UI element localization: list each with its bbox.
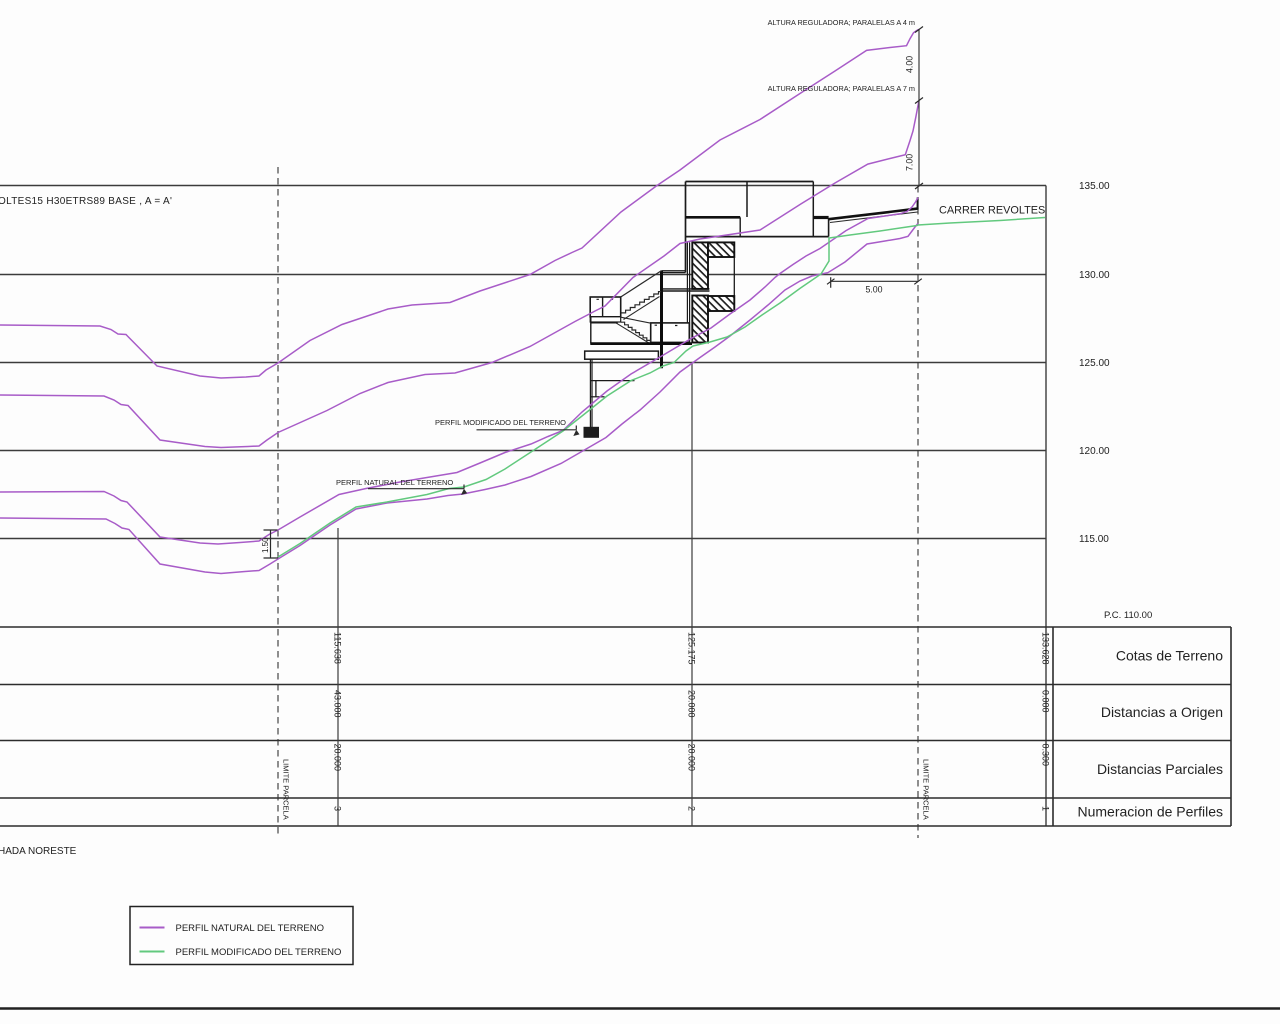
svg-text:20.000: 20.000 xyxy=(687,744,697,772)
svg-text:1.50: 1.50 xyxy=(261,537,270,553)
svg-text:LIMITE PARCELA: LIMITE PARCELA xyxy=(922,759,931,820)
svg-text:4.00: 4.00 xyxy=(905,56,915,73)
svg-text:ALTURA REGULADORA; PARALELAS A: ALTURA REGULADORA; PARALELAS A 4 m xyxy=(768,18,915,27)
svg-text:120.00: 120.00 xyxy=(1079,446,1110,457)
svg-text:ALTURA REGULADORA; PARALELAS A: ALTURA REGULADORA; PARALELAS A 7 m xyxy=(768,84,915,93)
svg-text:Distancias Parciales: Distancias Parciales xyxy=(1097,761,1223,777)
svg-text:Distancias a Origen: Distancias a Origen xyxy=(1101,704,1223,720)
svg-text:43.000: 43.000 xyxy=(333,690,343,718)
svg-text:125.175: 125.175 xyxy=(687,632,697,665)
svg-text:5.00: 5.00 xyxy=(865,285,882,295)
svg-text:20.000: 20.000 xyxy=(687,690,697,718)
svg-text:0.000: 0.000 xyxy=(1041,690,1051,713)
svg-text:Cotas de Terreno: Cotas de Terreno xyxy=(1116,648,1223,664)
svg-text:130.00: 130.00 xyxy=(1079,270,1110,281)
svg-text:CARRER REVOLTES: CARRER REVOLTES xyxy=(939,205,1045,217)
svg-text:PERFIL MODIFICADO DEL TERRENO: PERFIL MODIFICADO DEL TERRENO xyxy=(176,947,342,958)
svg-text:HADA NORESTE: HADA NORESTE xyxy=(0,846,77,857)
svg-text:115.638: 115.638 xyxy=(333,632,343,664)
svg-text:20.000: 20.000 xyxy=(333,744,343,772)
svg-text:115.00: 115.00 xyxy=(1079,534,1109,545)
svg-text:2: 2 xyxy=(687,806,697,811)
svg-text:133.628: 133.628 xyxy=(1041,632,1051,665)
svg-text:1: 1 xyxy=(1041,806,1051,811)
svg-text:PERFIL MODIFICADO DEL TERRENO: PERFIL MODIFICADO DEL TERRENO xyxy=(435,418,566,427)
svg-text:Numeracion de Perfiles: Numeracion de Perfiles xyxy=(1077,804,1223,820)
svg-text:0.300: 0.300 xyxy=(1041,744,1051,767)
svg-text:125.00: 125.00 xyxy=(1079,358,1110,369)
svg-text:PERFIL NATURAL DEL TERRENO: PERFIL NATURAL DEL TERRENO xyxy=(336,478,453,487)
svg-text:P.C. 110.00: P.C. 110.00 xyxy=(1104,610,1152,621)
svg-text:PERFIL NATURAL DEL TERRENO: PERFIL NATURAL DEL TERRENO xyxy=(176,923,325,934)
svg-text:3: 3 xyxy=(333,806,343,811)
svg-text:OLTES15 H30ETRS89 BASE , A = A: OLTES15 H30ETRS89 BASE , A = A' xyxy=(0,196,172,207)
svg-text:135.00: 135.00 xyxy=(1079,181,1110,192)
svg-text:LIMITE PARCELA: LIMITE PARCELA xyxy=(282,759,291,820)
svg-text:7.00: 7.00 xyxy=(905,154,915,171)
